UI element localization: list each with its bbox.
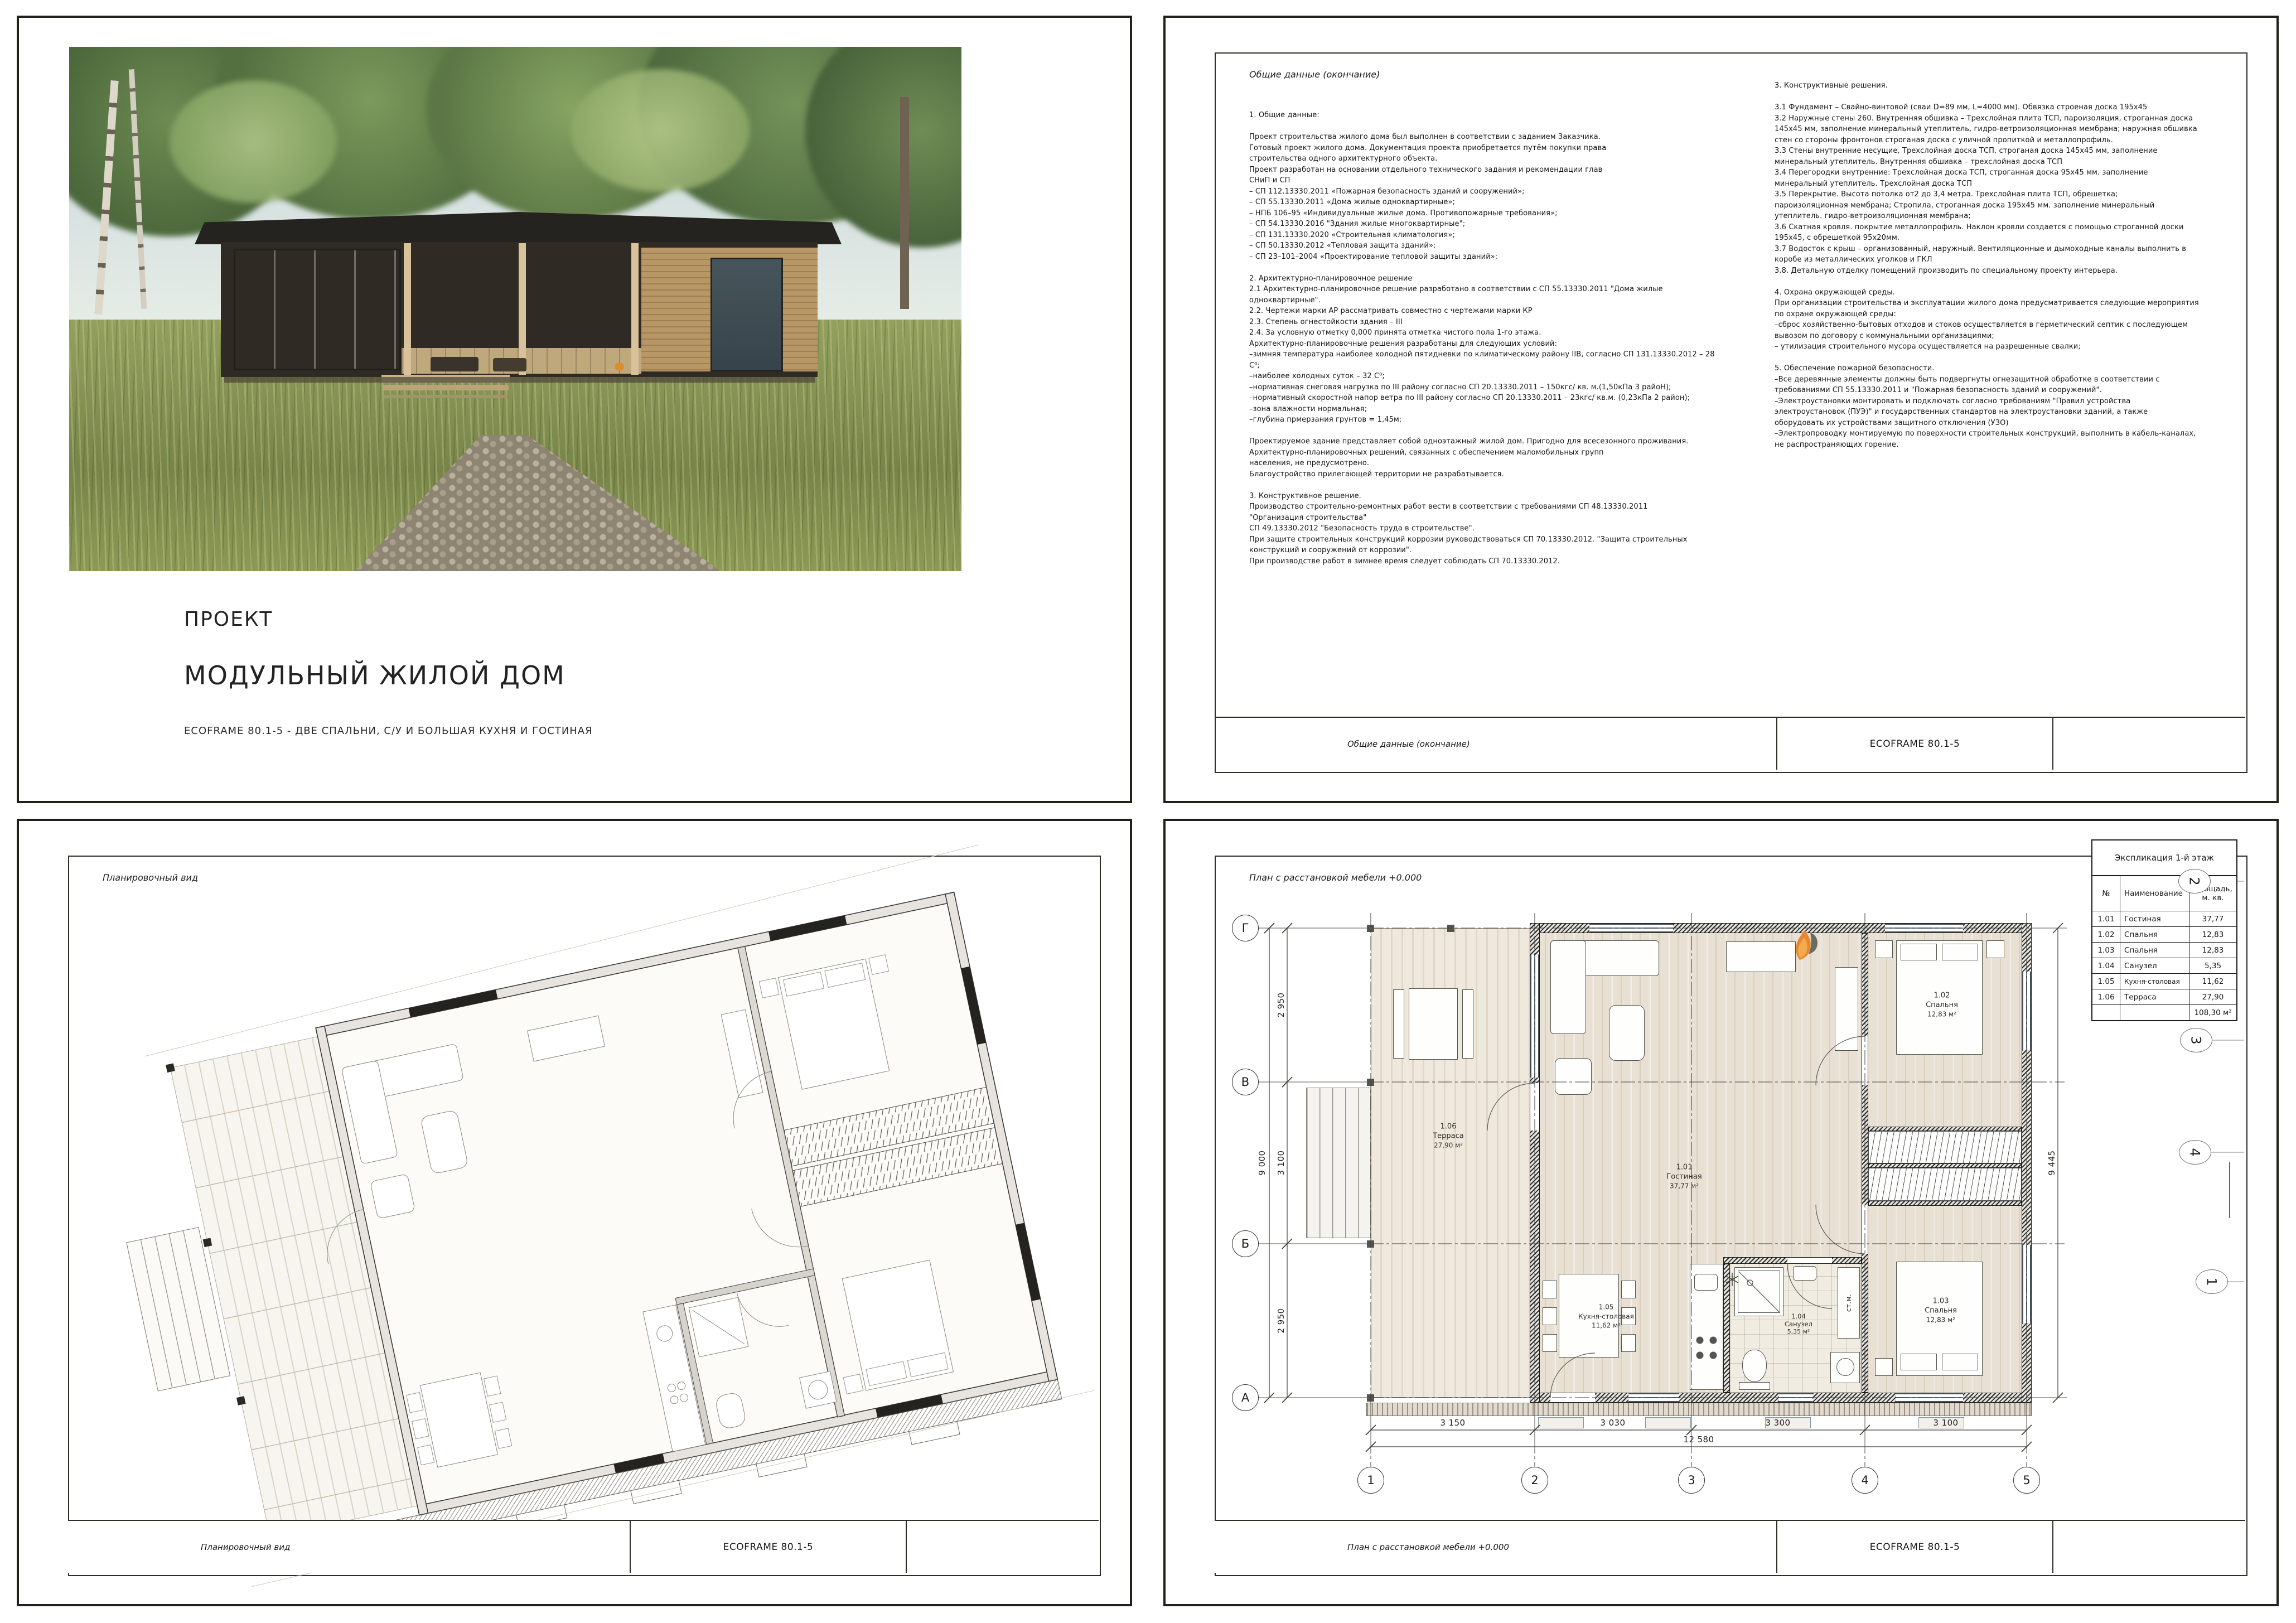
title-block-doc-title: План с расстановкой мебели +0.000: [1215, 1521, 1777, 1573]
room-num: 1.03: [1925, 1297, 1957, 1306]
explication-table: Экспликация 1-й этаж № Наименование Площ…: [2091, 839, 2237, 1021]
grid-bubble-G: Г: [1232, 915, 1259, 941]
pillow: [1901, 1354, 1937, 1370]
grid-bubble-A: А: [1232, 1384, 1259, 1411]
cell-name: Спальня: [2120, 943, 2189, 958]
wall-wardrobe-mid: [1868, 1163, 2022, 1168]
pillow: [1942, 1354, 1978, 1370]
window: [1896, 1393, 1963, 1402]
entry-step: [1538, 1417, 1584, 1428]
cover-sheet: ПРОЕКТ МОДУЛЬНЫЙ ЖИЛОЙ ДОМ ECOFRAME 80.1…: [17, 16, 1132, 803]
title-block-empty: [907, 1521, 1099, 1573]
chair: [1543, 1334, 1557, 1352]
sheet-header: План с расстановкой мебели +0.000: [1249, 872, 1422, 883]
kitchen-sink: [1694, 1274, 1718, 1291]
dim-left-1: 2 950: [1276, 993, 1286, 1018]
terrace-post: [1367, 925, 1374, 932]
room-num: 1.01: [1666, 1163, 1702, 1172]
wall-interior-bedrooms: [1862, 933, 1868, 1393]
grid-label: А: [1241, 1391, 1249, 1404]
cell-name: Кухня-столовая: [2120, 974, 2189, 989]
room-name: Спальня: [1925, 1306, 1957, 1316]
grid-label: 3: [1688, 1474, 1695, 1487]
dim-bottom-1: 3 150: [1441, 1418, 1466, 1428]
shower: [1734, 1267, 1783, 1316]
sofa-chaise: [1550, 940, 1586, 1034]
terrace-post: [1447, 925, 1454, 932]
sideboard: [1726, 941, 1796, 972]
cell-num: 1.06: [2092, 989, 2120, 1004]
entry-step: [1645, 1417, 1691, 1428]
pillow: [1901, 944, 1937, 960]
marker-label: 1: [2204, 1277, 2220, 1286]
house-glazing-left: [234, 249, 401, 370]
terrace-post: [1367, 1240, 1374, 1248]
cell-area: 11,62: [2189, 974, 2236, 989]
grid-label: 2: [1531, 1474, 1538, 1487]
edge-marker-1: 1: [2196, 1269, 2228, 1294]
terrace-post: [1367, 1079, 1374, 1086]
terrace-bench: [1462, 989, 1473, 1059]
room-num: 1.02: [1926, 991, 1958, 1001]
grid-bubble-3: 3: [1678, 1467, 1705, 1494]
chair: [1543, 1281, 1557, 1298]
title-block-code: ECOFRAME 80.1-5: [631, 1521, 907, 1573]
room-name: Санузел: [1785, 1320, 1812, 1328]
cell-name: Гостиная: [2120, 911, 2189, 926]
cell-num: 1.02: [2092, 927, 2120, 942]
nightstand: [1986, 940, 2004, 958]
grid-bubble-5: 5: [2013, 1467, 2040, 1494]
cell-name: Санузел: [2120, 958, 2189, 973]
marker-label: 2: [2187, 877, 2202, 885]
glazed-wall-terrace: [1530, 955, 1539, 1078]
house-photo: [69, 47, 961, 571]
doc-title-text: План с расстановкой мебели +0.000: [1347, 1542, 1509, 1552]
cell-num: 1.05: [2092, 974, 2120, 989]
cell-empty: [2092, 1005, 2120, 1020]
cover-subtitle: ECOFRAME 80.1-5 - ДВЕ СПАЛЬНИ, С/У И БОЛ…: [184, 725, 593, 737]
tree-canopy-light: [170, 80, 337, 203]
room-num: 1.04: [1785, 1312, 1812, 1320]
pillow: [1942, 944, 1978, 960]
room-name: Терраса: [1433, 1132, 1464, 1141]
washer-label: ст.м.: [1845, 1294, 1853, 1312]
cell-empty: [2120, 1005, 2189, 1020]
edge-marker-2: 2: [2178, 869, 2211, 893]
cell-name: Спальня: [2120, 927, 2189, 942]
doc-title-text: Общие данные (окончание): [1347, 739, 1470, 749]
explication-title: Экспликация 1-й этаж: [2091, 839, 2237, 876]
cover-title: МОДУЛЬНЫЙ ЖИЛОЙ ДОМ: [184, 660, 565, 690]
room-label-bedroom2: 1.03 Спальня 12,83 м²: [1925, 1297, 1957, 1325]
room-num: 1.05: [1578, 1302, 1634, 1312]
room-label-terrace: 1.06 Терраса 27,90 м²: [1433, 1122, 1464, 1150]
sheet-frame: [68, 856, 1101, 1576]
room-name: Спальня: [1926, 1001, 1958, 1010]
dim-right: 9 445: [2047, 1151, 2057, 1176]
title-block-empty: [2053, 1521, 2245, 1573]
title-block-code: ECOFRAME 80.1-5: [1777, 1521, 2053, 1573]
marker-label: 3: [2188, 1036, 2204, 1044]
doc-code-text: ECOFRAME 80.1-5: [1870, 738, 1960, 750]
title-block: Общие данные (окончание) ECOFRAME 80.1-5: [1215, 717, 2245, 770]
grid-bubble-V: В: [1232, 1069, 1259, 1095]
marker-label: 4: [2187, 1148, 2203, 1156]
title-block-doc-title: Планировочный вид: [68, 1521, 631, 1573]
title-block-empty: [2053, 718, 2245, 770]
cell-name: Терраса: [2120, 989, 2189, 1004]
general-data-sheet: Общие данные (окончание) 1. Общие данные…: [1163, 16, 2279, 803]
cell-area: 12,83: [2189, 927, 2236, 942]
chair: [1621, 1281, 1636, 1298]
glass-door-right: [710, 258, 783, 371]
terrace-table: [1409, 988, 1458, 1060]
col-header: №: [2092, 876, 2120, 911]
grid-label: Б: [1241, 1237, 1249, 1250]
terrace-post: [1367, 1394, 1374, 1402]
grid-bubble-B: Б: [1232, 1230, 1259, 1257]
room-area: 37,77 м²: [1666, 1181, 1702, 1191]
toilet: [1742, 1350, 1767, 1382]
cell-total: 108,30 м²: [2189, 1005, 2236, 1020]
dim-bottom-2: 3 030: [1601, 1418, 1626, 1428]
explication-row: 1.01 Гостиная 37,77: [2092, 911, 2236, 926]
cell-area: 37,77: [2189, 911, 2236, 926]
terrace-side-stairs: [1306, 1088, 1371, 1238]
room-area: 12,83 м²: [1925, 1315, 1957, 1325]
sheet-header: Планировочный вид: [103, 872, 198, 883]
room-area: 11,62 м²: [1578, 1321, 1634, 1330]
door-opening: [1787, 1258, 1832, 1263]
door-opening: [1862, 1036, 1868, 1085]
explication-row: 1.03 Спальня 12,83: [2092, 942, 2236, 958]
pumpkin: [615, 363, 624, 371]
cell-num: 1.04: [2092, 958, 2120, 973]
title-block: Планировочный вид ECOFRAME 80.1-5: [68, 1520, 1099, 1573]
cover-kicker: ПРОЕКТ: [184, 608, 273, 631]
porch-furniture: [493, 358, 526, 371]
dim-left-2: 3 100: [1276, 1151, 1286, 1176]
armchair: [1555, 1058, 1592, 1095]
nightstand: [1875, 940, 1893, 958]
wall-wardrobe-bottom: [1868, 1201, 2022, 1206]
title-block-code: ECOFRAME 80.1-5: [1777, 718, 2053, 770]
entry-deck: [1366, 1403, 2032, 1416]
window: [2022, 972, 2031, 1050]
wardrobe: [1868, 1131, 2022, 1163]
window: [1589, 924, 1673, 933]
cell-num: 1.03: [2092, 943, 2120, 958]
door-opening-entrance: [1550, 1393, 1595, 1402]
grid-label: 1: [1367, 1474, 1374, 1487]
sheet-header: Общие данные (окончание): [1249, 69, 1380, 80]
room-label-bathroom: 1.04 Санузел 5,35 м²: [1785, 1312, 1812, 1336]
dim-left-total: 9 000: [1257, 1151, 1267, 1176]
dim-bottom-total: 12 580: [1684, 1434, 1714, 1445]
room-label-bedroom1: 1.02 Спальня 12,83 м²: [1926, 991, 1958, 1019]
doc-code-text: ECOFRAME 80.1-5: [723, 1542, 814, 1553]
grid-bubble-4: 4: [1852, 1467, 1878, 1494]
terrace-bench: [1393, 989, 1404, 1059]
cell-area: 12,83: [2189, 943, 2236, 958]
axonometric-drawing: [19, 821, 1132, 1606]
grid-label: Г: [1242, 921, 1249, 935]
explication-header-row: № Наименование Площадь, м. кв.: [2092, 876, 2236, 911]
window: [1779, 1393, 1812, 1402]
cell-area: 5,35: [2189, 958, 2236, 973]
tree-trunk: [900, 97, 909, 309]
window: [1885, 924, 1963, 933]
grid-label: 4: [1861, 1474, 1868, 1487]
dim-bottom-4: 3 100: [1934, 1418, 1959, 1428]
bath-sink: [1793, 1266, 1816, 1281]
room-label-living: 1.01 Гостиная 37,77 м²: [1666, 1163, 1702, 1191]
explication-row: 1.06 Терраса 27,90: [2092, 989, 2236, 1004]
dim-left-3: 2 950: [1276, 1308, 1286, 1334]
edge-marker-4: 4: [2179, 1140, 2211, 1165]
explication-row: 1.02 Спальня 12,83: [2092, 926, 2236, 942]
room-num: 1.06: [1433, 1122, 1464, 1132]
tv-console: [1835, 967, 1858, 1051]
chair: [1543, 1307, 1557, 1325]
doc-code-text: ECOFRAME 80.1-5: [1870, 1542, 1960, 1553]
edge-marker-3: 3: [2180, 1028, 2212, 1052]
general-col1: 1. Общие данные: Проект строительства жи…: [1249, 110, 1754, 567]
door-opening: [1862, 1205, 1868, 1254]
room-area: 5,35 м²: [1785, 1328, 1812, 1336]
wardrobe: [1868, 1168, 2022, 1201]
porch-post: [631, 243, 639, 375]
chair: [1621, 1334, 1636, 1352]
window: [2022, 1245, 2031, 1323]
cell-num: 1.01: [2092, 911, 2120, 926]
plan-sheet: План с расстановкой мебели +0.000: [1163, 819, 2279, 1606]
general-col2: 3. Конструктивные решения. 3.1 Фундамент…: [1775, 80, 2254, 450]
explication-row: 1.05 Кухня-столовая 11,62: [2092, 973, 2236, 989]
title-block: План с расстановкой мебели +0.000 ECOFRA…: [1215, 1520, 2245, 1573]
door-opening: [1530, 1083, 1539, 1131]
grid-label: 5: [2023, 1474, 2030, 1487]
grid-bubble-1: 1: [1357, 1467, 1384, 1494]
grid-bubble-2: 2: [1521, 1467, 1548, 1494]
cell-area: 27,90: [2189, 989, 2236, 1004]
room-area: 27,90 м²: [1433, 1141, 1464, 1150]
room-label-kitchen: 1.05 Кухня-столовая 11,62 м²: [1578, 1302, 1634, 1330]
porch-post: [519, 243, 526, 375]
coffee-table: [1609, 1005, 1645, 1061]
wall-wardrobe-top: [1868, 1127, 2022, 1131]
porch-post: [404, 243, 411, 375]
explication-total-row: 108,30 м²: [2092, 1004, 2236, 1020]
wall-bath-left: [1723, 1264, 1730, 1393]
cooktop: [1692, 1332, 1721, 1364]
explication-row: 1.04 Санузел 5,35: [2092, 958, 2236, 973]
window: [1628, 1393, 1679, 1402]
dim-bottom-3: 3 300: [1766, 1418, 1791, 1428]
room-name: Кухня-столовая: [1578, 1312, 1634, 1321]
porch-furniture: [431, 357, 478, 371]
toilet-tank: [1739, 1382, 1770, 1390]
foundation-shadow: [224, 377, 815, 383]
doc-title-text: Планировочный вид: [201, 1542, 290, 1552]
title-block-doc-title: Общие данные (окончание): [1215, 718, 1777, 770]
washing-machine-drum: [1836, 1358, 1854, 1376]
nightstand: [1875, 1358, 1893, 1376]
room-name: Гостиная: [1666, 1172, 1702, 1182]
grid-label: В: [1241, 1075, 1249, 1089]
room-area: 12,83 м²: [1926, 1009, 1958, 1019]
axon-sheet: Планировочный вид: [17, 819, 1132, 1606]
tree-canopy-light: [571, 69, 750, 192]
